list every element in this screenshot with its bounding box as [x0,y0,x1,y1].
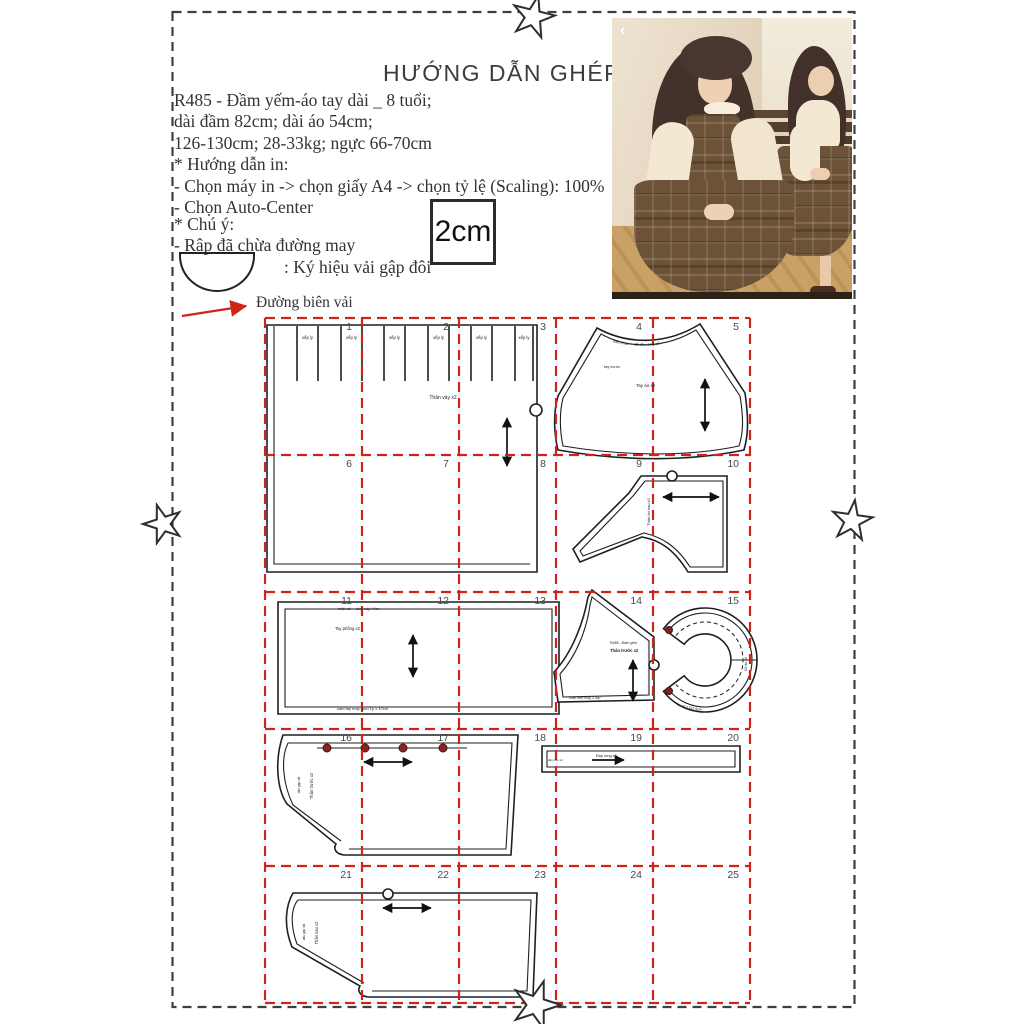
girl2-hands [810,168,830,180]
piece-collar [664,608,758,712]
girl2-leg [820,256,831,290]
selvage-arrow [182,306,246,316]
piece-label: Cổ áo x2 [744,657,748,671]
grid-cell-number: 17 [431,732,449,744]
print-instructions-header: * Hướng dẫn in: [174,154,604,175]
notch-mark [530,404,542,416]
piece-back-panel [286,889,537,997]
grid-cell-number: 23 [528,869,546,881]
piece-strap-band [542,746,740,772]
print-instruction-step: - Chọn máy in -> chọn giấy A4 -> chọn tỷ… [174,176,604,197]
grid-cell-number: 9 [624,458,642,470]
selvage-label: Đường biên vải [256,294,353,312]
grid-cell-number: 22 [431,869,449,881]
grid-cell-number: 18 [528,732,546,744]
button-mark [666,627,673,634]
piece-label: Thân trước x2 [309,772,314,799]
pleat-label: xếp ly [346,335,358,340]
piece-label: Tay phồng x2 [335,626,361,631]
grid-cell-number: 8 [528,458,546,470]
piece-label: Thân trước x2 [610,648,639,653]
girl2-face [808,66,834,96]
grid-cell-number: 10 [721,458,739,470]
button-mark [323,744,331,752]
info-line: R485 - Đầm yếm-áo tay dài _ 8 tuổi; [174,90,604,111]
notch-mark [667,471,677,481]
button-mark [666,688,673,695]
star-icon [508,0,558,39]
grid-cell-number: 12 [431,595,449,607]
grid-cell-number: 11 [334,595,352,607]
piece-label: Đáp lưng x2 [596,754,617,758]
notch-mark [383,889,393,899]
piece-label: Tay áo x2 [636,383,656,388]
info-line: dài đầm 82cm; dài áo 54cm; [174,111,604,132]
piece-note: dấu gập vải [297,776,301,793]
info-line: 126-130cm; 28-33kg; ngực 66-70cm [174,133,604,154]
girl1-hair-fringe [680,36,752,80]
piece-label: Thân sau x2 [314,921,319,945]
piece-label: Thân áo sau x2 [646,497,651,525]
grid-cell-number: 14 [624,595,642,607]
girl1-hands [704,204,734,220]
piece-skirt-panel: xếp lyxếp lyxếp lyxếp lyxếp lyxếp ly [267,325,542,572]
piece-note: R485 - Đầm yếm [610,641,637,645]
grid-cell-number: 25 [721,869,739,881]
piece-cuff-panel [278,602,559,714]
grid-cell-number: 19 [624,732,642,744]
product-photo: ‹ [612,18,852,299]
piece-bib-front [554,590,659,702]
piece-note: dấu gập vải [302,923,306,940]
grid-cell-number: 5 [721,321,739,333]
back-chevron-icon[interactable]: ‹ [620,22,625,40]
piece-note: dây treo x2 [548,758,563,762]
grid-cell-number: 13 [528,595,546,607]
photo-bottom-bar [612,292,852,299]
note-block: * Chú ý: - Rập đã chừa đường may [174,214,355,257]
grid-cell-number: 3 [528,321,546,333]
pleat-label: xếp ly [433,335,445,340]
grid-cell-number: 21 [334,869,352,881]
grid-cell-number: 1 [334,321,352,333]
grid-cell-number: 6 [334,458,352,470]
grid-cell-number: 16 [334,732,352,744]
note-header: * Chú ý: [174,214,355,235]
pleat-label: xếp ly [389,335,401,340]
grid-cell-number: 4 [624,321,642,333]
piece-note: Thân trên may 2 lớp [568,696,600,700]
pleat-label: xếp ly [476,335,488,340]
grid-cell-number: 15 [721,595,739,607]
pattern-info-block: R485 - Đầm yếm-áo tay dài _ 8 tuổi; dài … [174,90,604,218]
grid-cell-number: 2 [431,321,449,333]
scale-check-box: 2cm [430,199,496,265]
button-mark [399,744,407,752]
piece-note: tay trước [604,364,620,369]
grid-cell-number: 7 [431,458,449,470]
grid-cell-number: 24 [624,869,642,881]
piece-note: cầm tay may thun 1p x 47cm [337,706,389,711]
grid-cell-number: 20 [721,732,739,744]
piece-label: Thân váy x2 [429,395,456,401]
star-icon [139,499,186,545]
fold-symbol-label: : Ký hiệu vải gập đôi [284,257,431,278]
star-icon [830,497,875,540]
button-mark [439,744,447,752]
pleat-label: xếp ly [302,335,314,340]
pleat-label: xếp ly [519,335,531,340]
